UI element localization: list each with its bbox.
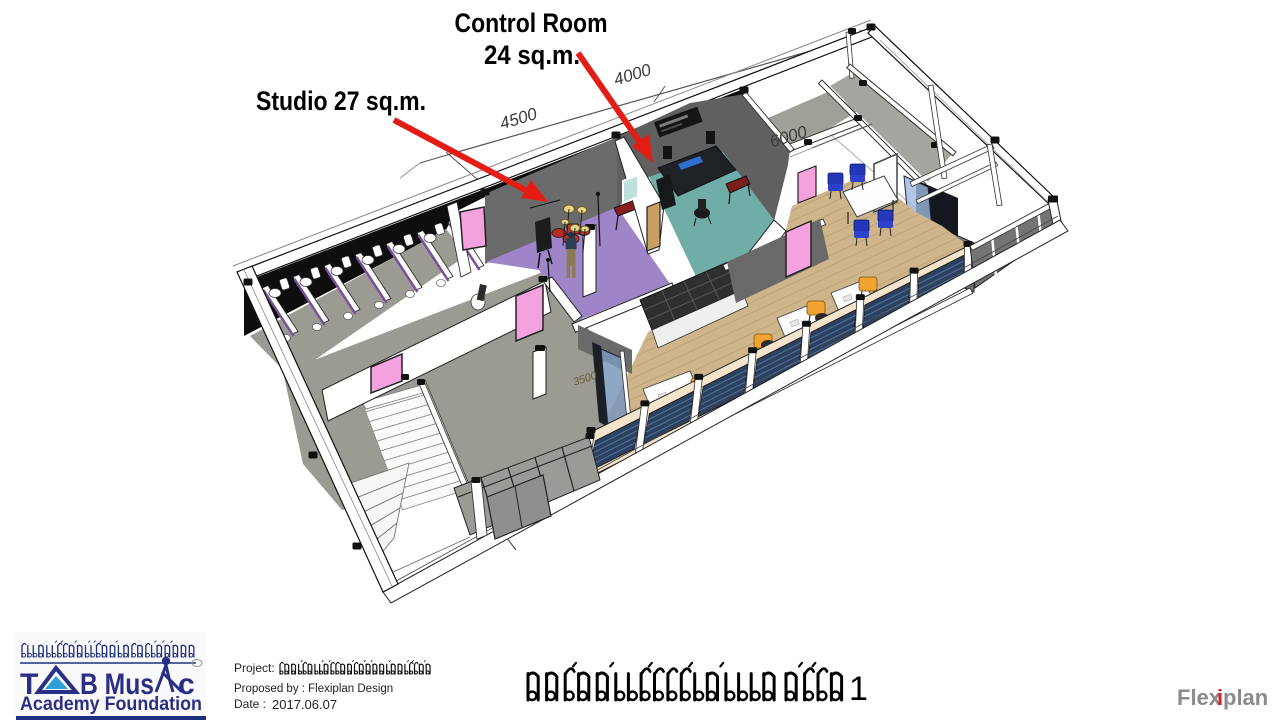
svg-text:24 sq.m.: 24 sq.m. bbox=[484, 40, 580, 70]
svg-text:Control Room: Control Room bbox=[455, 8, 608, 38]
svg-text:Date :: Date : bbox=[234, 697, 266, 711]
svg-text:Flex: Flex bbox=[1177, 685, 1222, 710]
svg-text:Proposed by : Flexiplan Design: Proposed by : Flexiplan Design bbox=[234, 683, 393, 695]
svg-text:2017.06.07: 2017.06.07 bbox=[272, 697, 337, 712]
svg-text:Academy Foundation: Academy Foundation bbox=[20, 693, 202, 715]
svg-text:plan: plan bbox=[1223, 685, 1268, 710]
svg-text:Studio 27 sq.m.: Studio 27 sq.m. bbox=[256, 86, 426, 116]
svg-text:1: 1 bbox=[849, 670, 868, 708]
svg-text:Project:: Project: bbox=[234, 661, 275, 675]
